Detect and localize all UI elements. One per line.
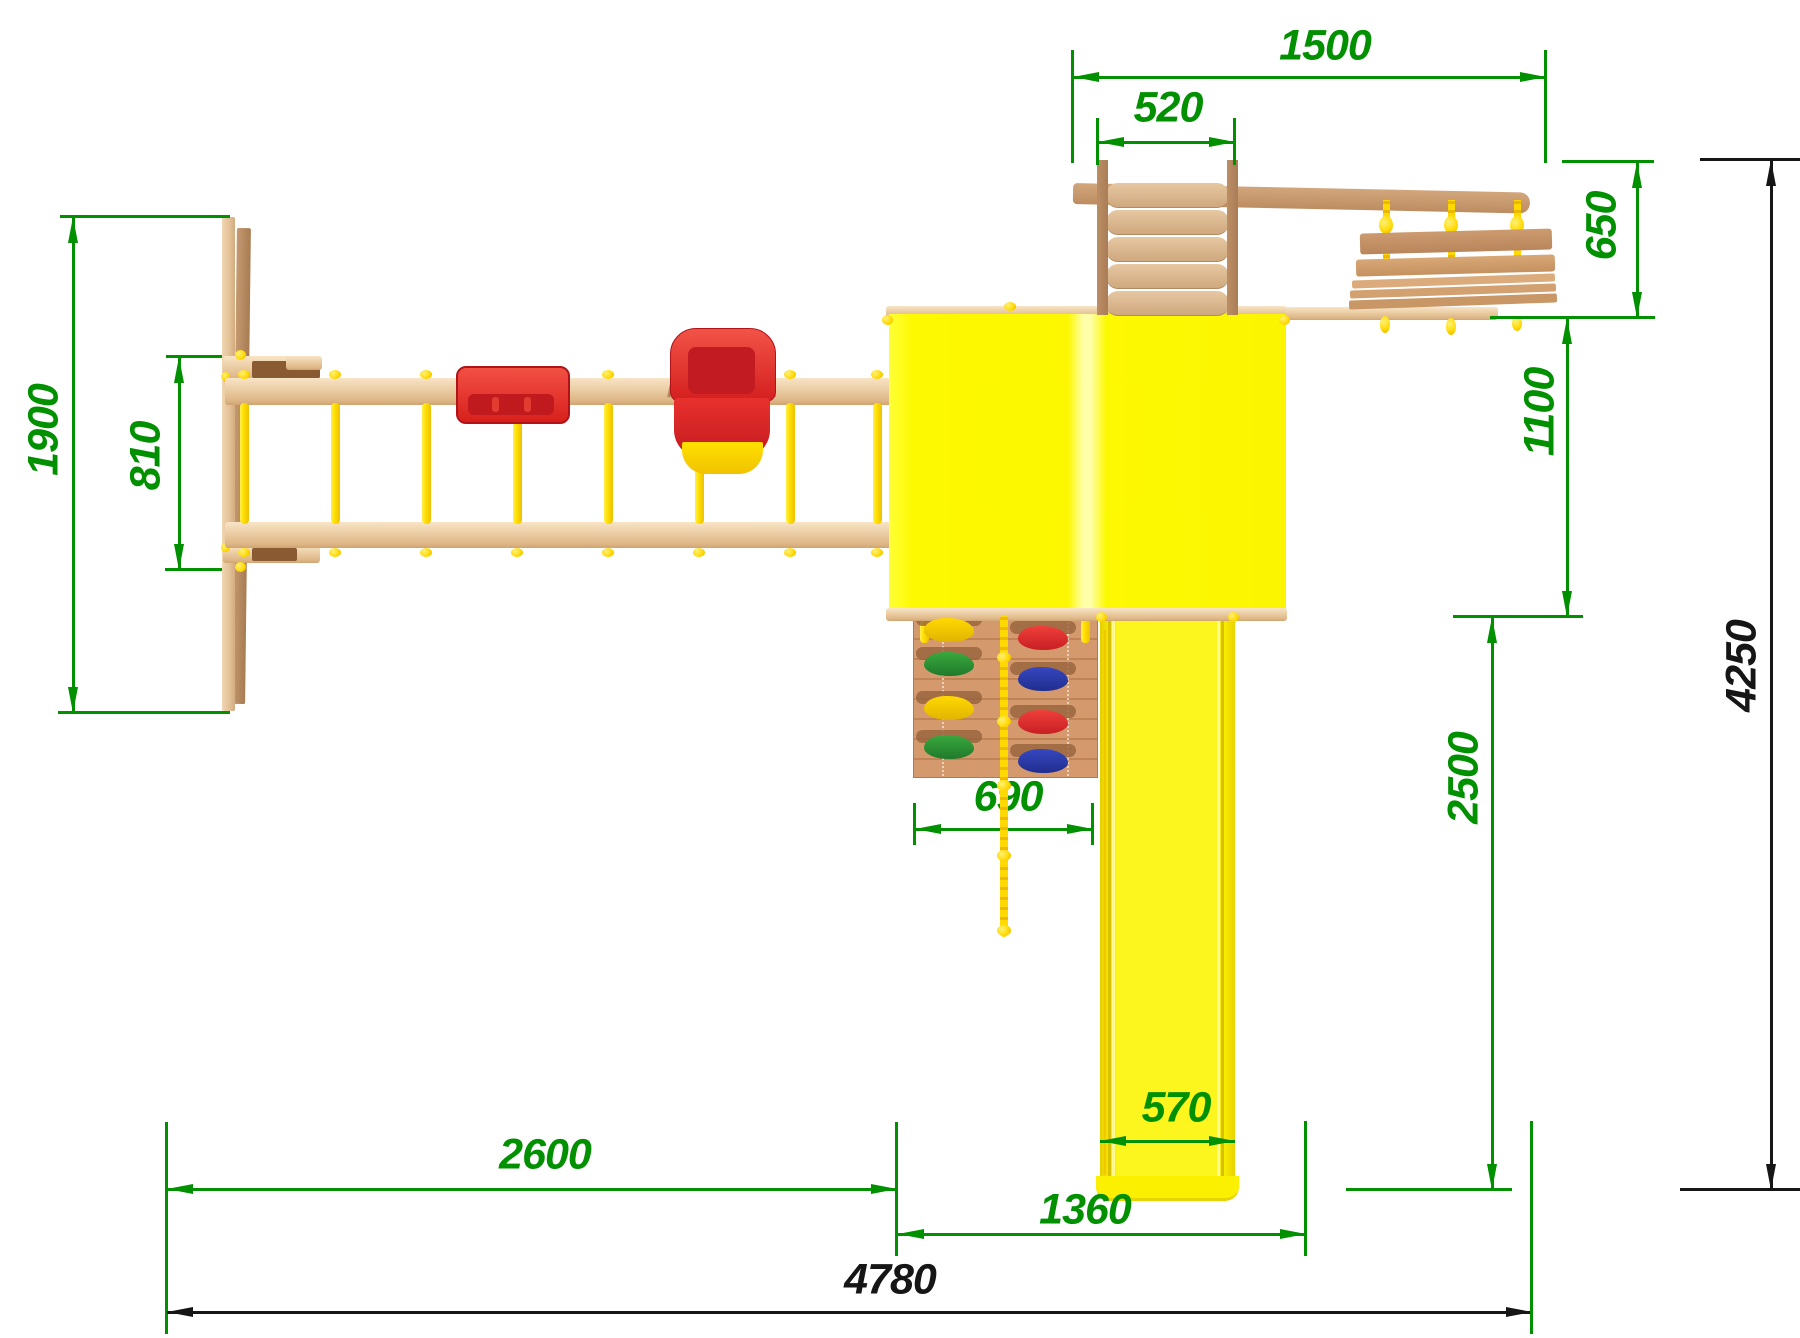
- dim-650-arrow-down: [1632, 292, 1642, 318]
- dim-1100-tick-bottom: [1453, 615, 1583, 618]
- dim-1360-arrow-left: [898, 1229, 924, 1239]
- dim-650-tick-top: [1562, 160, 1654, 163]
- climbing-rope-knot: [997, 716, 1011, 727]
- monkey-bar-rung: [786, 403, 795, 524]
- dim-4780-line: [167, 1311, 1532, 1314]
- a-frame-bottom-bracket-dark: [252, 548, 297, 561]
- slide-rail-left: [1108, 617, 1111, 1183]
- climbing-hold-yellow: [924, 696, 974, 720]
- dim-1500-ext-left: [1071, 50, 1074, 163]
- monkey-bar-beam-bottom: [225, 522, 891, 548]
- rung-cap: [693, 548, 705, 557]
- climbing-hold-red: [1018, 710, 1068, 734]
- baby-swing-seat-cushion: [682, 442, 763, 474]
- dim-810-label: 810: [125, 422, 168, 491]
- slide-rail-left-highlight: [1112, 617, 1115, 1183]
- dim-4250-tick-top: [1700, 158, 1800, 161]
- rung-cap: [871, 548, 883, 557]
- dim-690-arrow-left: [915, 824, 941, 834]
- rung-cap: [871, 370, 883, 379]
- dim-4780-ext-right: [1530, 1121, 1533, 1334]
- monkey-bar-rung: [240, 403, 249, 524]
- climbing-rope-knot: [997, 925, 1011, 936]
- dim-2500-arrow-down: [1487, 1164, 1497, 1190]
- flat-swing-seat-slats: [468, 394, 554, 415]
- dim-1500-label: 1500: [1279, 25, 1371, 68]
- dim-1360-ext-right: [1304, 1121, 1307, 1256]
- dim-4250-tick-bottom: [1680, 1188, 1800, 1191]
- dim-4250-arrow-up: [1766, 160, 1776, 186]
- dim-4250-line: [1770, 160, 1773, 1190]
- climbing-rope-knot: [997, 780, 1011, 791]
- dim-1900-tick-bottom: [58, 711, 230, 714]
- ladder-rung: [1106, 291, 1229, 316]
- dim-1100-label: 1100: [1519, 368, 1562, 456]
- climbing-rope-knot: [997, 850, 1011, 861]
- dim-2500-label: 2500: [1443, 732, 1486, 824]
- dim-1100-arrow-down: [1562, 591, 1572, 617]
- rung-cap: [420, 548, 432, 557]
- ladder-rail-left: [1097, 160, 1108, 315]
- dim-2600-ext-left: [165, 1122, 168, 1334]
- climbing-rope-knot: [997, 652, 1011, 663]
- dim-520-arrow-left: [1098, 137, 1124, 147]
- rung-cap: [238, 548, 250, 557]
- rung-cap: [420, 370, 432, 379]
- ladder-rung: [1106, 264, 1229, 289]
- dim-4780-label: 4780: [844, 1259, 936, 1302]
- dim-810-tick-top: [166, 355, 222, 358]
- dim-650-tick-bottom: [1490, 316, 1655, 319]
- monkey-bar-rung: [331, 403, 340, 524]
- dim-520-ext-right: [1233, 118, 1236, 165]
- rung-cap: [511, 548, 523, 557]
- dim-2600-line: [167, 1188, 897, 1191]
- slide-bed-accent: [1104, 630, 1106, 1175]
- rung-cap: [329, 548, 341, 557]
- dim-810-line: [178, 357, 181, 570]
- dim-2500-line: [1491, 617, 1494, 1190]
- dim-650-label: 650: [1581, 192, 1624, 261]
- dim-570-label: 570: [1142, 1087, 1211, 1130]
- dim-1900-arrow-down: [68, 687, 78, 713]
- dim-4250-label: 4250: [1721, 620, 1764, 712]
- dim-1500-ext-right: [1544, 50, 1547, 163]
- dim-690-arrow-right: [1067, 824, 1093, 834]
- bench-rope-tail: [1446, 318, 1456, 335]
- rung-cap: [784, 548, 796, 557]
- baby-swing-seat-window: [688, 347, 755, 394]
- roof-corner-dot: [1228, 612, 1239, 622]
- dim-810-arrow-down: [174, 544, 184, 570]
- dim-1360-label: 1360: [1039, 1189, 1131, 1232]
- dim-2500-tick-bottom: [1346, 1188, 1512, 1191]
- rung-cap: [784, 370, 796, 379]
- dim-1900-tick-top: [60, 215, 230, 218]
- a-frame-top-bracket-small: [286, 356, 322, 370]
- dim-2500-arrow-up: [1487, 617, 1497, 643]
- dim-520-arrow-right: [1209, 137, 1235, 147]
- bench-rope-tail: [1380, 316, 1390, 333]
- rung-cap: [602, 548, 614, 557]
- flat-swing-seat-divider: [524, 397, 531, 412]
- dim-1500-arrow-left: [1073, 72, 1099, 82]
- dim-1500-arrow-right: [1520, 72, 1546, 82]
- frame-cap-dot: [235, 350, 246, 360]
- tower-roof-highlight-stripe: [1068, 314, 1106, 613]
- frame-cap-dot: [235, 562, 246, 572]
- roof-corner-dot: [1279, 315, 1290, 325]
- dim-650-arrow-up: [1632, 162, 1642, 188]
- ladder-rung: [1106, 210, 1229, 235]
- dim-4780-arrow-left: [167, 1307, 193, 1317]
- a-frame-plank: [222, 217, 235, 711]
- climbing-hold-yellow: [924, 618, 974, 642]
- dim-4250-arrow-down: [1766, 1164, 1776, 1190]
- climbing-hold-red: [1018, 626, 1068, 650]
- bench-support-beam: [1360, 228, 1552, 254]
- roof-corner-dot: [1096, 612, 1107, 622]
- climbing-hold-blue: [1018, 667, 1068, 691]
- monkey-bar-rung: [604, 403, 613, 524]
- dim-1900-label: 1900: [23, 384, 66, 476]
- dim-2600-label: 2600: [499, 1134, 591, 1177]
- flat-swing-seat-divider: [492, 397, 499, 412]
- dim-1360-arrow-right: [1280, 1229, 1306, 1239]
- dim-810-tick-bottom: [165, 568, 222, 571]
- dim-570-arrow-right: [1209, 1136, 1235, 1146]
- climbing-hold-blue: [1018, 749, 1068, 773]
- dim-690-ext-right: [1091, 803, 1094, 845]
- slide-rail-right: [1221, 617, 1224, 1183]
- rung-cap: [329, 370, 341, 379]
- dim-810-arrow-up: [174, 357, 184, 383]
- dim-2600-arrow-right: [871, 1184, 897, 1194]
- climbing-hold-green: [924, 735, 974, 759]
- ladder-rail-right: [1227, 160, 1238, 315]
- dim-520-label: 520: [1134, 87, 1203, 130]
- dim-2600-arrow-left: [167, 1184, 193, 1194]
- rung-cap: [238, 370, 250, 379]
- dim-1900-arrow-up: [68, 217, 78, 243]
- roof-corner-dot: [1004, 302, 1016, 311]
- dim-1900-line: [72, 217, 75, 713]
- slide-rail-right-highlight: [1217, 617, 1220, 1177]
- dim-570-arrow-left: [1100, 1136, 1126, 1146]
- dim-1500-line: [1073, 76, 1546, 79]
- climbing-hold-green: [924, 652, 974, 676]
- bench-rope-knot: [1379, 216, 1393, 234]
- dim-690-ext-left: [913, 803, 916, 845]
- wall-dowel: [1081, 619, 1090, 643]
- monkey-bar-rung: [422, 403, 431, 524]
- climbing-rope: [1000, 615, 1008, 937]
- dim-520-ext-left: [1096, 118, 1099, 165]
- ladder-rung: [1106, 183, 1229, 208]
- technical-drawing-canvas: 1500 520 650 1100 2500: [0, 0, 1800, 1338]
- ladder-rung: [1106, 237, 1229, 262]
- dim-1100-line: [1566, 318, 1569, 617]
- roof-corner-dot: [882, 315, 893, 325]
- dim-4780-arrow-right: [1506, 1307, 1532, 1317]
- rung-cap: [602, 370, 614, 379]
- monkey-bar-rung: [873, 403, 882, 524]
- dim-1100-arrow-up: [1562, 318, 1572, 344]
- bench-bottom-plank: [1285, 307, 1498, 320]
